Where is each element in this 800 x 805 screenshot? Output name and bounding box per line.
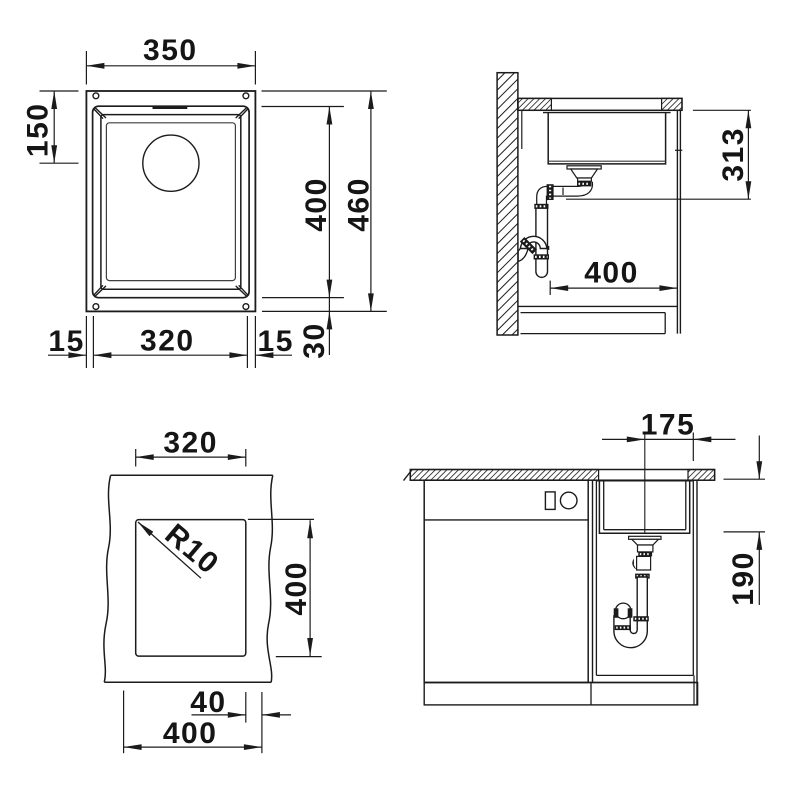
svg-text:350: 350 xyxy=(143,34,198,67)
svg-text:400: 400 xyxy=(584,257,639,290)
svg-text:320: 320 xyxy=(163,427,218,460)
svg-text:320: 320 xyxy=(140,325,195,358)
svg-text:40: 40 xyxy=(190,686,226,719)
svg-text:30: 30 xyxy=(298,322,331,358)
svg-text:400: 400 xyxy=(300,177,333,232)
svg-text:400: 400 xyxy=(280,561,313,616)
svg-text:313: 313 xyxy=(717,127,750,182)
svg-text:15: 15 xyxy=(48,325,84,358)
svg-text:190: 190 xyxy=(727,551,760,606)
svg-text:175: 175 xyxy=(641,409,696,442)
svg-text:400: 400 xyxy=(163,717,218,750)
svg-text:150: 150 xyxy=(21,103,54,158)
svg-text:15: 15 xyxy=(258,325,294,358)
